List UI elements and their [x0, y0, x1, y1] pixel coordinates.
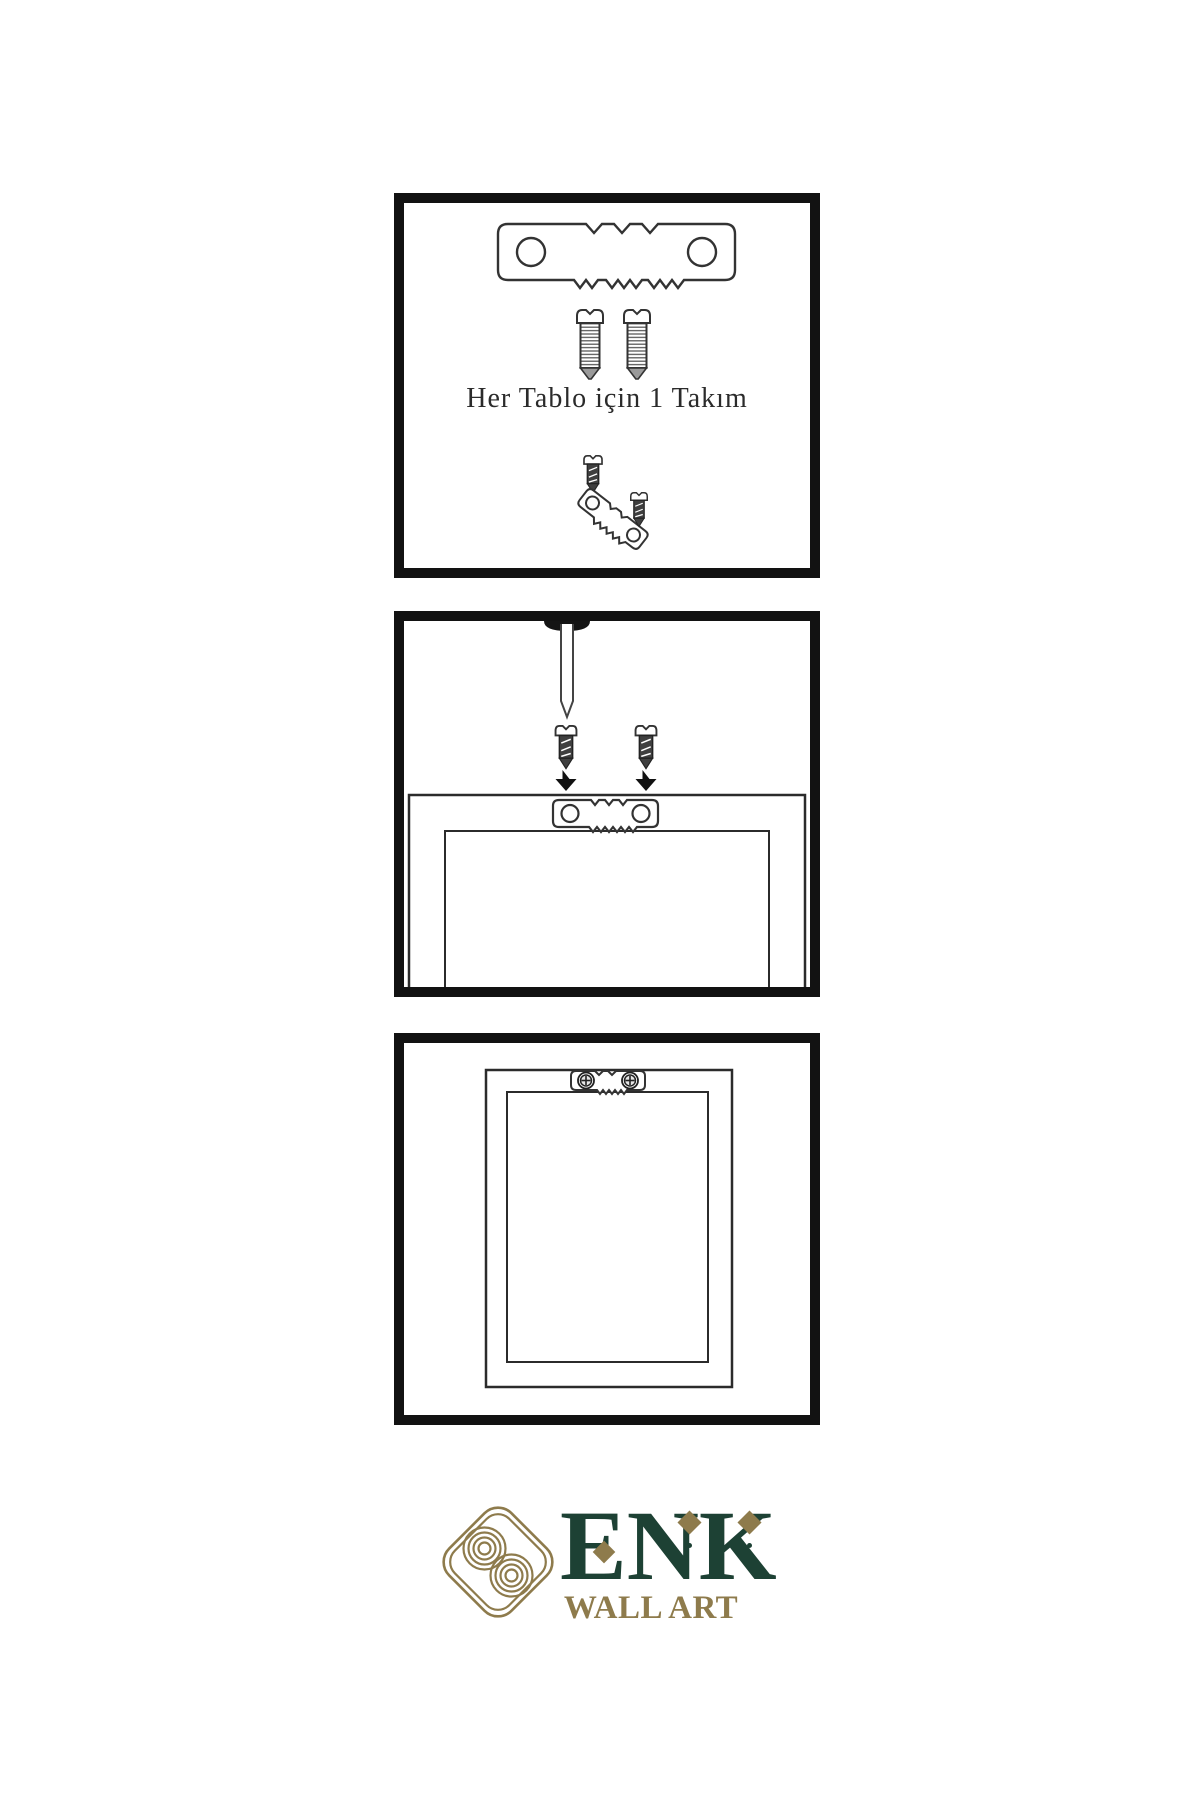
frame-back-inner-edge — [507, 1092, 708, 1362]
down-arrow-icon — [636, 770, 657, 791]
screw-icon — [624, 310, 650, 379]
screw-icon — [556, 726, 577, 769]
knot-logo-icon — [436, 1496, 560, 1628]
brand-dot — [747, 1543, 752, 1548]
instruction-sheet: Her Tablo için 1 Takım — [0, 0, 1200, 1800]
sawtooth-hanger-icon — [553, 800, 658, 832]
down-arrow-icon — [556, 770, 577, 791]
brand-tagline: WALL ART — [551, 1592, 751, 1625]
hung-frame-drawing — [404, 1043, 810, 1415]
step-2-mounting-panel — [394, 611, 820, 997]
screw-icon — [636, 726, 657, 769]
mounting-drawing — [404, 621, 810, 987]
screw-icon — [577, 310, 603, 379]
kit-caption: Her Tablo için 1 Takım — [404, 383, 810, 415]
mounted-sawtooth-hanger-icon — [571, 1071, 645, 1094]
phillips-head-icon — [622, 1073, 638, 1089]
sawtooth-hanger-icon — [498, 224, 735, 288]
step-3-hung-frame-panel — [394, 1033, 820, 1425]
knot-loop-lower — [491, 1555, 533, 1597]
brand-name: ENK — [560, 1496, 775, 1596]
wall-nail-icon — [544, 621, 590, 717]
phillips-head-icon — [578, 1073, 594, 1089]
brand-dot — [687, 1543, 692, 1548]
small-screw-icon — [584, 456, 602, 493]
brand-dot — [601, 1574, 606, 1579]
knot-loop-upper — [464, 1528, 506, 1570]
step-1-hardware-kit-panel: Her Tablo için 1 Takım — [394, 193, 820, 578]
frame-back-inner-edge — [445, 831, 769, 987]
